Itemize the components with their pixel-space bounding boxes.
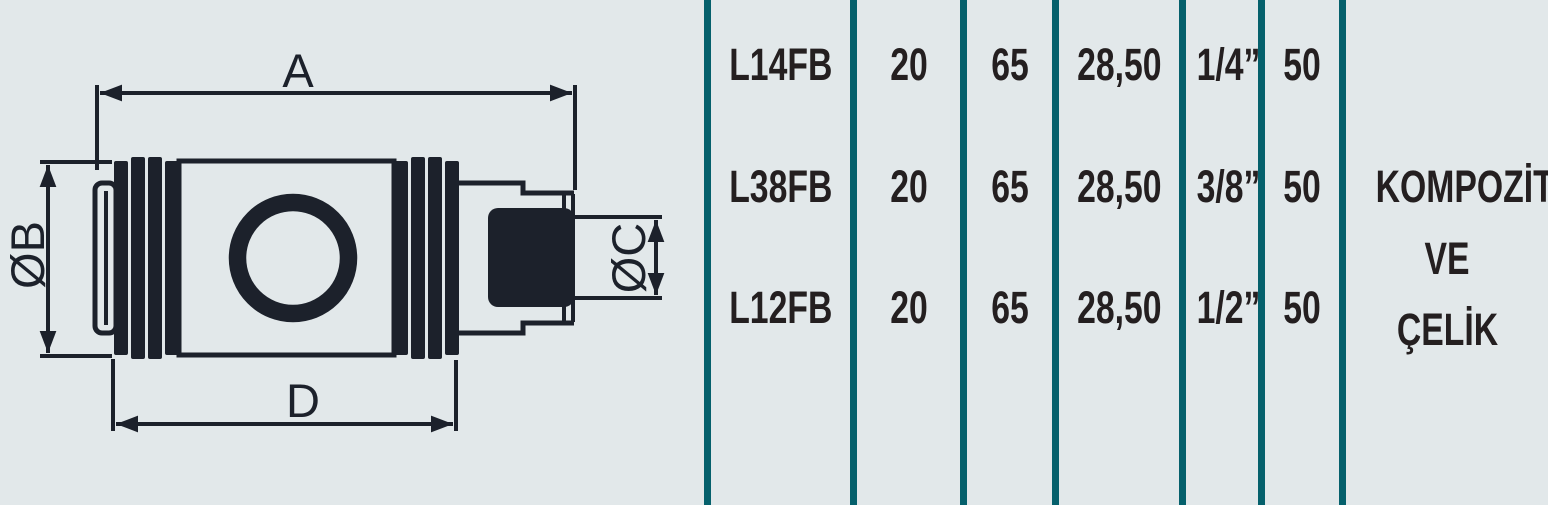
rib (165, 161, 179, 355)
material-text: VE (1424, 233, 1469, 285)
value: 20 (890, 39, 928, 91)
part-number: L14FB (729, 39, 832, 91)
material-note-line: KOMPOZİT (1346, 161, 1548, 213)
thread-size: 1/4” (1197, 39, 1261, 91)
table-cell: 3/8” (1186, 161, 1259, 213)
value: 20 (890, 282, 928, 334)
body-outline (179, 161, 394, 355)
technical-drawing: A ØB ØC D (0, 0, 700, 505)
thread-size: 1/2” (1197, 282, 1261, 334)
right-knurl (394, 157, 459, 359)
value: 20 (890, 161, 928, 213)
table-cell: 50 (1265, 161, 1340, 213)
right-step-bottom (459, 323, 574, 333)
table-divider (704, 0, 711, 505)
value: 50 (1284, 39, 1322, 91)
value: 50 (1284, 161, 1322, 213)
material-text: ÇELİK (1396, 304, 1497, 356)
part-number: L12FB (729, 282, 832, 334)
center-bore (238, 203, 349, 314)
table-cell: 20 (857, 161, 961, 213)
part-number: L38FB (729, 161, 832, 213)
table-cell: 28,50 (1059, 39, 1180, 91)
rib (428, 157, 442, 359)
material-text: KOMPOZİT (1376, 161, 1548, 213)
table-cell: 20 (857, 39, 961, 91)
dim-label-d: D (286, 374, 320, 427)
right-step-top (459, 183, 574, 193)
value: 28,50 (1077, 39, 1161, 91)
catalog-page: A ØB ØC D L14FB 20 65 28,50 1/4” 50 L38F… (0, 0, 1548, 505)
table-divider (850, 0, 857, 505)
table-cell-part: L12FB (711, 282, 851, 334)
table-cell: 50 (1265, 39, 1340, 91)
material-note-line: ÇELİK (1346, 304, 1548, 356)
seal-block (488, 208, 574, 307)
value: 65 (991, 161, 1029, 213)
table-divider (1052, 0, 1059, 505)
table-cell: 65 (967, 161, 1053, 213)
rib (411, 157, 425, 359)
table-divider (960, 0, 967, 505)
table-cell: 1/4” (1186, 39, 1259, 91)
table-cell: 65 (967, 282, 1053, 334)
table-cell: 65 (967, 39, 1053, 91)
table-cell: 20 (857, 282, 961, 334)
material-note-line: VE (1346, 233, 1548, 285)
table-divider (1339, 0, 1346, 505)
thread-size: 3/8” (1197, 161, 1261, 213)
table-cell-part: L14FB (711, 39, 851, 91)
dim-label-a: A (282, 44, 314, 97)
table-cell: 50 (1265, 282, 1340, 334)
left-knurl (114, 157, 179, 359)
rib (131, 157, 145, 359)
value: 28,50 (1077, 282, 1161, 334)
rib (114, 161, 128, 355)
table-cell: 1/2” (1186, 282, 1259, 334)
table-cell: 28,50 (1059, 282, 1180, 334)
dim-label-b: ØB (1, 221, 54, 289)
value: 28,50 (1077, 161, 1161, 213)
rib (148, 157, 162, 359)
value: 65 (991, 39, 1029, 91)
table-cell-part: L38FB (711, 161, 851, 213)
value: 50 (1284, 282, 1322, 334)
dim-label-c: ØC (602, 223, 655, 294)
value: 65 (991, 282, 1029, 334)
coupling-side-view: A ØB ØC D (0, 0, 700, 505)
table-cell: 28,50 (1059, 161, 1180, 213)
table-divider (1179, 0, 1186, 505)
rib (394, 161, 408, 355)
rib (445, 161, 459, 355)
